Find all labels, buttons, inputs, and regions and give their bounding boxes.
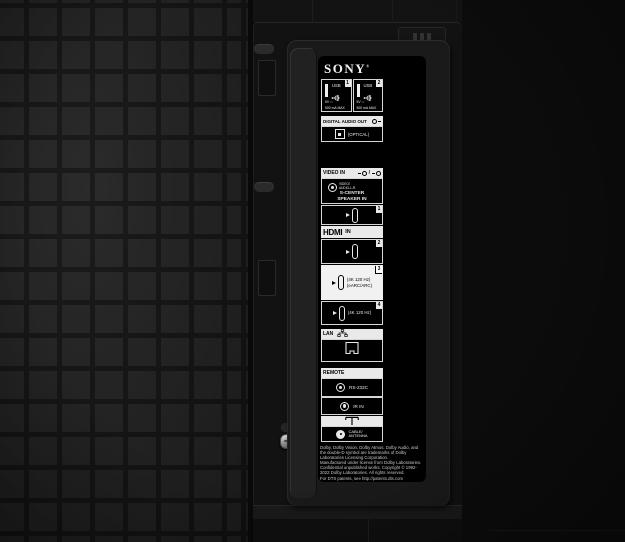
coax-connector-icon: [336, 430, 345, 439]
ethernet-port-icon: [344, 341, 360, 360]
video-in-label: VIDEO IN: [323, 170, 345, 176]
connector-cover-plate: SONY® 1 USB 5V ⎓ 500 mA MAX 2 USB: [287, 40, 450, 506]
hdmi-port-3: 3 (4K 120 Hz)(eARC/ARC): [321, 265, 383, 300]
hdmi-port-1: 1: [321, 205, 383, 225]
tv-back-grid-texture: [0, 0, 250, 542]
panel-seam: [368, 519, 369, 542]
usb-current-rating: 500 mA MAX: [325, 106, 345, 110]
rs232c-port: RS-232C: [321, 378, 383, 397]
ir-in-label: IR IN: [353, 404, 363, 409]
hdmi3-capability-label: (4K 120 Hz)(eARC/ARC): [347, 277, 372, 288]
lan-port: [321, 339, 383, 362]
hdmi-port-2: 2: [321, 239, 383, 264]
usb-ports-group: 1 USB 5V ⎓ 500 mA MAX 2 USB 5V: [321, 79, 383, 112]
hdmi-port-4: 4 (4K 120 Hz): [321, 301, 383, 325]
port-number-badge: 1: [345, 80, 351, 87]
port-number-badge: 3: [375, 266, 382, 274]
hdmi-port-icon: [333, 306, 345, 321]
hdmi-port-icon: [346, 208, 358, 223]
optical-port: (OPTICAL): [321, 126, 383, 142]
rca-jack-icon: /: [358, 170, 381, 176]
tv-rear-panel-photo: SONY® 1 USB 5V ⎓ 500 mA MAX 2 USB: [0, 0, 625, 542]
cable-antenna-label: CABLE/ANTENNA: [348, 430, 367, 439]
usb-slot-icon: [325, 84, 328, 97]
hdmi4-capability-label: (4K 120 Hz): [348, 310, 371, 315]
usb-power-rating: 5V ⎓: [325, 100, 333, 104]
video-in-header: VIDEO IN /: [321, 168, 383, 178]
lan-label: LAN: [323, 331, 333, 337]
remote-header: REMOTE: [321, 368, 383, 378]
minijack-icon: [336, 383, 345, 392]
lan-header: LAN: [321, 329, 383, 339]
digital-audio-out-header: DIGITAL AUDIO OUT: [321, 116, 383, 126]
s-center-speaker-in-port: VIDEO/AUDIO-L-R S-CENTERSPEAKER IN: [321, 178, 383, 204]
lan-network-icon: [337, 329, 348, 339]
optical-port-icon: [335, 129, 345, 139]
usb-port-1: 1 USB 5V ⎓ 500 mA MAX: [321, 79, 352, 112]
optical-label: (OPTICAL): [348, 132, 369, 137]
usb-port-2: 2 USB 5V ⎓ 500 mA MAX: [353, 79, 384, 112]
tv-body-bottom: [253, 519, 462, 542]
dolby-legal-text: Dolby, Dolby Vision, Dolby Atmos, Dolby …: [320, 445, 424, 481]
connector-label-panel: SONY® 1 USB 5V ⎓ 500 mA MAX 2 USB: [318, 56, 426, 482]
hdmi-in-header: HDMI IN: [321, 226, 383, 238]
panel-seam: [312, 0, 313, 22]
audio-out-jack-icon: [372, 119, 381, 124]
usb-label: USB: [364, 83, 373, 88]
usb-trident-icon: [331, 89, 342, 107]
bay-bottom-edge: [253, 505, 462, 520]
panel-seam: [392, 0, 393, 20]
panel-seam: [490, 530, 625, 531]
cover-clip-slot: [258, 60, 276, 96]
port-number-badge: 2: [376, 80, 382, 87]
usb-slot-icon: [357, 84, 360, 97]
port-number-badge: 4: [376, 302, 382, 309]
rs232c-label: RS-232C: [349, 385, 368, 390]
hdmi-port-icon: [332, 275, 344, 290]
cover-clip-slot: [258, 260, 276, 296]
minijack-icon: [340, 402, 349, 411]
hdmi-in-label: IN: [345, 229, 351, 235]
cable-antenna-port: CABLE/ANTENNA: [321, 426, 383, 442]
tv-body-top-strip: [253, 0, 462, 22]
usb-label: USB: [332, 83, 341, 88]
usb-power-rating: 5V ⎓: [357, 100, 365, 104]
cover-hinge-bar: [290, 48, 317, 498]
digital-audio-out-label: DIGITAL AUDIO OUT: [323, 119, 367, 124]
sony-logo: SONY®: [324, 61, 369, 77]
s-center-label: S-CENTERSPEAKER IN: [322, 191, 382, 202]
usb-current-rating: 500 mA MAX: [357, 106, 377, 110]
antenna-symbol-strip: [321, 416, 383, 426]
cover-clip: [254, 182, 274, 192]
hdmi-port-icon: [346, 244, 358, 259]
hdmi-logo: HDMI: [323, 228, 342, 237]
jack-sublabel: VIDEO/AUDIO-L-R: [339, 183, 355, 190]
port-number-badge: 2: [376, 240, 382, 247]
usb-trident-icon: [363, 89, 374, 107]
port-number-badge: 1: [376, 206, 382, 213]
remote-label: REMOTE: [323, 370, 344, 376]
cover-clip: [254, 44, 274, 54]
